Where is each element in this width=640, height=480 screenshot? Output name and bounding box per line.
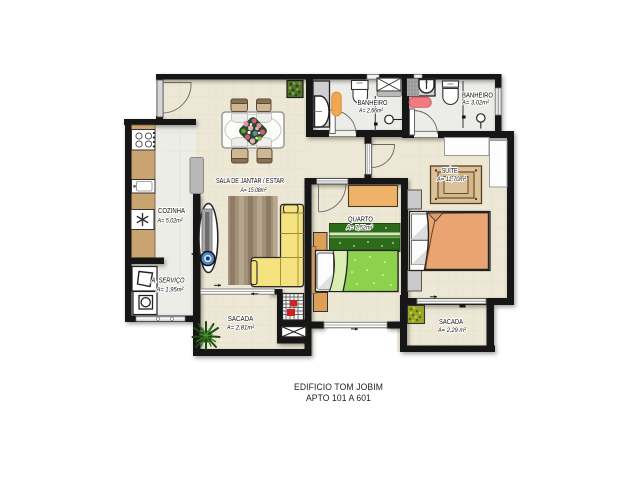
svg-text:SUÍTE: SUÍTE — [442, 166, 458, 175]
svg-text:A. SERVIÇO: A. SERVIÇO — [151, 278, 185, 285]
svg-text:A= 2,81m²: A= 2,81m² — [226, 325, 255, 332]
svg-text:APTO 101 A 601: APTO 101 A 601 — [306, 393, 371, 403]
svg-text:A= 7,52m²: A= 7,52m² — [346, 225, 373, 232]
svg-text:SACADA: SACADA — [439, 319, 463, 326]
svg-text:A= 3,02m²: A= 3,02m² — [461, 100, 489, 107]
svg-text:COZINHA: COZINHA — [158, 208, 185, 215]
svg-text:SACADA: SACADA — [228, 316, 254, 323]
svg-text:A= 2,66m²: A= 2,66m² — [358, 108, 383, 115]
svg-text:A= 11,70m²: A= 11,70m² — [436, 176, 466, 183]
svg-text:A= 5,02m²: A= 5,02m² — [157, 218, 183, 225]
svg-text:A= 15,08m²: A= 15,08m² — [240, 187, 267, 194]
svg-text:BANHEIRO: BANHEIRO — [358, 100, 388, 107]
svg-text:EDIFICIO TOM JOBIM: EDIFICIO TOM JOBIM — [294, 382, 383, 392]
svg-text:SALA DE JANTAR / ESTAR: SALA DE JANTAR / ESTAR — [216, 178, 284, 185]
svg-text:A= 2,29 m²: A= 2,29 m² — [437, 327, 466, 334]
svg-text:A= 1,95m²: A= 1,95m² — [156, 287, 184, 294]
svg-text:BANHEIRO: BANHEIRO — [462, 93, 493, 100]
svg-text:QUARTO: QUARTO — [348, 217, 373, 224]
